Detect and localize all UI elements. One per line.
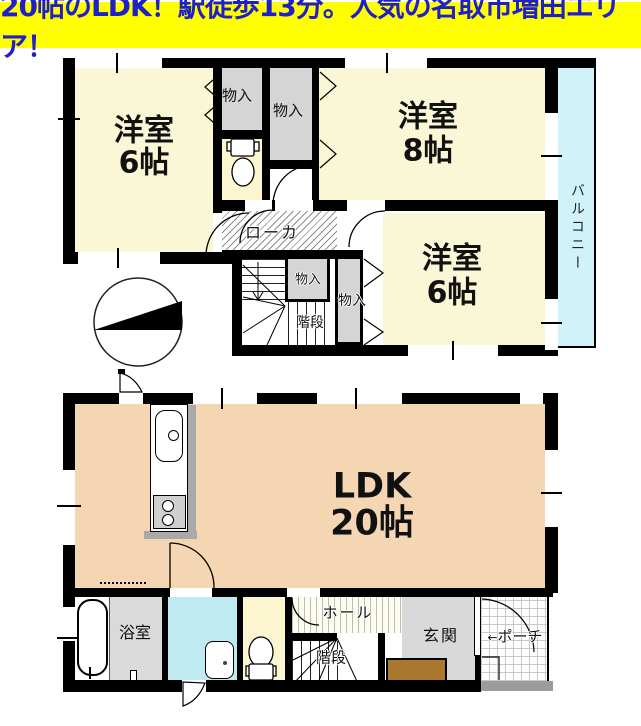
stairs-2f-winder	[242, 307, 287, 345]
closet-label-text: 物入	[273, 102, 303, 120]
ldk-name: LDK	[333, 467, 411, 507]
closet-label-text: 物入	[338, 293, 366, 309]
burner-icon	[162, 514, 174, 526]
room-name: 洋室	[422, 241, 482, 276]
kitchen-counter-edge	[188, 405, 196, 538]
bathtub-faucet	[89, 667, 91, 679]
burner-icon	[162, 500, 174, 512]
wall	[222, 250, 363, 259]
stairs-label: 階段	[316, 647, 346, 668]
bathroom-label: 浴室	[119, 619, 151, 643]
front-door-leaf	[474, 596, 481, 656]
door-opening	[275, 200, 313, 211]
hall-label-text: ホール	[322, 604, 373, 622]
window	[75, 58, 162, 68]
door-opening	[119, 393, 143, 404]
closet-label: 物入	[222, 85, 252, 106]
door-arc	[273, 165, 313, 205]
window-tick	[355, 388, 357, 409]
closet-label: 物入	[295, 269, 321, 288]
porch-label: ←ポーチ	[487, 626, 542, 647]
entrance-label-text: 玄関	[423, 626, 459, 645]
window	[63, 470, 75, 545]
wall	[237, 597, 243, 682]
compass-icon	[94, 278, 182, 374]
room-label: 洋室	[398, 101, 458, 133]
room-size-text: 8帖	[403, 133, 454, 168]
room-size: 6帖	[427, 277, 478, 309]
closet-label: 物入	[338, 290, 366, 310]
balcony-label-text: バルコニー	[569, 183, 585, 273]
stairs-label-text: 階段	[316, 649, 346, 667]
door-opening	[170, 588, 212, 597]
wall	[232, 345, 558, 356]
room-size: 8帖	[403, 135, 454, 167]
window	[63, 607, 75, 641]
wall	[63, 680, 481, 692]
floor-plan-image: 20帖のLDK！駅徒歩13分。人気の名取市増田エリア！	[0, 0, 641, 726]
door-opening	[347, 200, 385, 211]
closet-d-door-zone	[363, 252, 383, 345]
stairs-label: 階段	[296, 312, 324, 332]
room-name: 洋室	[114, 113, 174, 148]
room-label: 洋室	[114, 115, 174, 147]
ldk-size: 20帖	[330, 506, 414, 543]
corridor-2f-east	[337, 211, 385, 250]
room-size-text: 6帖	[427, 275, 478, 310]
door-swing	[120, 373, 142, 392]
room-name: 洋室	[398, 99, 458, 134]
window	[545, 450, 558, 527]
window-tick	[116, 53, 118, 73]
bath-door-mark	[130, 670, 137, 681]
bathtub-icon	[77, 599, 108, 676]
open-boundary-dotted	[100, 582, 146, 584]
hall-label: ホール	[322, 602, 373, 623]
faucet-icon	[168, 430, 179, 441]
toilet-room-1f	[243, 597, 285, 682]
stairs-2f-treads	[242, 259, 287, 307]
wall	[162, 597, 168, 682]
window-tick	[541, 492, 562, 494]
corridor-label: ローカ	[245, 219, 299, 243]
window	[545, 299, 558, 350]
porch-edge	[547, 593, 549, 683]
closet-label-text: 物入	[295, 273, 321, 288]
window	[193, 393, 257, 404]
wall	[232, 256, 242, 356]
closet-label: 物入	[273, 100, 303, 121]
room-size: 6帖	[119, 147, 170, 179]
window	[78, 252, 160, 264]
entrance-label: 玄関	[423, 622, 459, 646]
room-size-text: 6帖	[119, 145, 170, 180]
shoe-cabinet	[386, 658, 447, 682]
room-label: 洋室	[422, 243, 482, 275]
wall	[312, 58, 319, 211]
ad-banner-text: 20帖のLDK！駅徒歩13分。人気の名取市増田エリア！	[0, 0, 641, 65]
window-tick	[221, 388, 223, 409]
wall	[285, 633, 337, 641]
toilet-room-2f	[222, 139, 262, 200]
ad-banner: 20帖のLDK！駅徒歩13分。人気の名取市増田エリア！	[0, 2, 641, 48]
stairs-label-text: 階段	[296, 315, 324, 331]
corridor-label-text: ローカ	[245, 223, 299, 242]
wall	[378, 633, 385, 692]
porch-step	[481, 681, 553, 691]
balcony-label: バルコニー	[567, 183, 587, 273]
wall	[262, 68, 270, 208]
door-opening	[182, 680, 206, 692]
door-opening	[287, 588, 320, 597]
wall	[285, 593, 292, 692]
entrance-arrow: ←	[487, 631, 497, 645]
door-opening	[245, 200, 272, 211]
room-ldk	[75, 404, 545, 588]
window-tick	[541, 322, 562, 324]
bathroom-label-text: 浴室	[119, 623, 151, 642]
window-tick	[58, 118, 80, 120]
window-tick	[386, 53, 388, 73]
washbasin-drain	[223, 661, 227, 665]
ldk-label: LDK	[333, 469, 411, 506]
window-tick	[452, 341, 454, 360]
ldk-size-text: 20帖	[330, 504, 414, 544]
window	[520, 393, 543, 404]
wall	[63, 58, 75, 264]
kitchen-counter-base	[144, 531, 197, 539]
washbasin-icon	[205, 641, 234, 679]
window	[317, 393, 402, 404]
window-tick	[117, 248, 119, 268]
window-tick	[541, 155, 562, 157]
porch-label-text: ポーチ	[498, 628, 543, 646]
closet-label-text: 物入	[222, 87, 252, 105]
window-tick	[57, 505, 81, 507]
wall	[475, 655, 481, 682]
